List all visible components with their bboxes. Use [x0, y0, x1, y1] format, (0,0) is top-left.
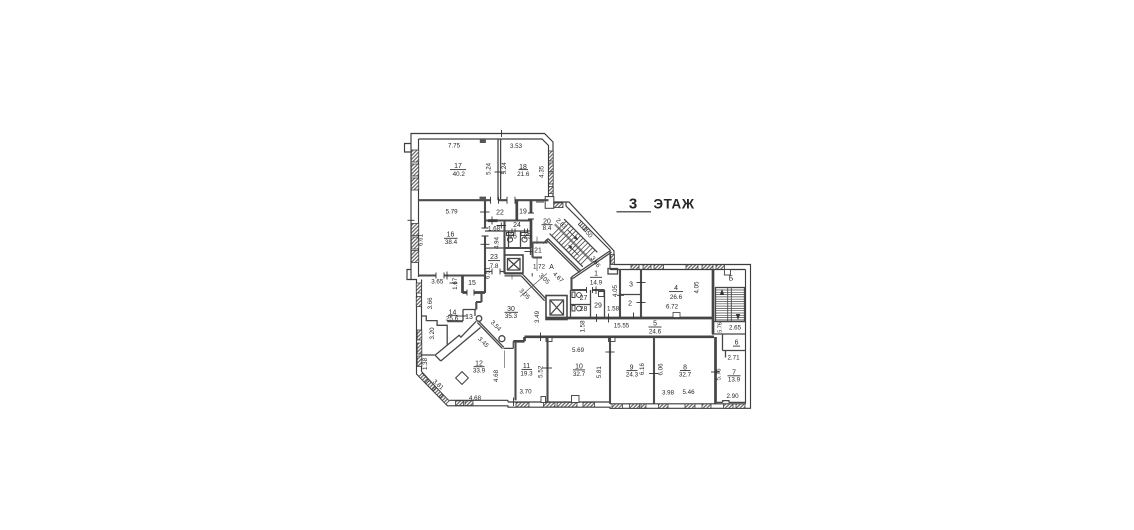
svg-text:2.71: 2.71: [727, 355, 740, 362]
svg-text:29: 29: [594, 303, 602, 310]
svg-text:21: 21: [534, 248, 542, 255]
svg-text:5.69: 5.69: [572, 347, 585, 354]
svg-text:6.51: 6.51: [485, 266, 492, 279]
svg-text:19.3: 19.3: [520, 371, 533, 378]
svg-text:1: 1: [594, 271, 598, 278]
svg-text:15.55: 15.55: [614, 323, 630, 330]
svg-text:25.6: 25.6: [446, 315, 459, 322]
svg-text:5.76: 5.76: [716, 368, 723, 381]
svg-text:4.35: 4.35: [539, 165, 546, 178]
svg-text:3.66: 3.66: [427, 297, 434, 310]
svg-text:5.24: 5.24: [501, 162, 508, 175]
svg-text:38.4: 38.4: [445, 239, 458, 246]
svg-text:3.65: 3.65: [431, 279, 444, 286]
svg-text:1.58: 1.58: [580, 320, 587, 333]
svg-text:4.68: 4.68: [493, 369, 500, 382]
svg-text:25: 25: [523, 234, 531, 241]
svg-text:26.6: 26.6: [670, 294, 683, 301]
svg-text:22: 22: [496, 210, 504, 217]
svg-text:6.72: 6.72: [666, 304, 679, 311]
svg-text:1.72: 1.72: [533, 264, 546, 271]
svg-text:4.68: 4.68: [469, 395, 482, 402]
svg-text:6.61: 6.61: [418, 233, 425, 246]
svg-text:3.98: 3.98: [662, 390, 675, 397]
svg-text:8.4: 8.4: [543, 225, 552, 232]
svg-text:4: 4: [674, 285, 678, 292]
svg-text:1.38: 1.38: [422, 357, 429, 370]
svg-text:2: 2: [628, 301, 632, 308]
svg-text:2.90: 2.90: [726, 393, 739, 400]
svg-text:27: 27: [580, 295, 588, 302]
svg-text:5.52: 5.52: [538, 365, 545, 378]
svg-text:10: 10: [575, 363, 583, 370]
svg-text:3.70: 3.70: [519, 389, 532, 396]
svg-text:19: 19: [519, 209, 527, 216]
svg-text:1.67: 1.67: [452, 277, 459, 290]
svg-text:5.46: 5.46: [682, 389, 695, 396]
svg-text:5.24: 5.24: [486, 162, 493, 175]
svg-text:23: 23: [490, 254, 498, 261]
svg-text:6: 6: [735, 340, 739, 347]
svg-text:4.05: 4.05: [694, 281, 701, 294]
svg-text:13: 13: [465, 314, 473, 321]
svg-text:7.75: 7.75: [448, 143, 461, 150]
svg-text:3.45: 3.45: [476, 336, 490, 350]
svg-text:35.3: 35.3: [505, 313, 518, 320]
svg-text:1.58: 1.58: [607, 305, 620, 312]
svg-text:24.3: 24.3: [626, 371, 639, 378]
svg-text:5.81: 5.81: [596, 366, 603, 379]
svg-text:3.05: 3.05: [518, 288, 532, 302]
svg-text:40.2: 40.2: [453, 171, 466, 178]
svg-text:5: 5: [653, 321, 657, 328]
svg-text:3: 3: [629, 282, 633, 289]
svg-text:3.20: 3.20: [429, 327, 436, 340]
svg-text:3.54: 3.54: [489, 319, 503, 333]
svg-text:30: 30: [507, 306, 515, 313]
svg-text:15: 15: [468, 280, 476, 287]
svg-text:1.68: 1.68: [488, 226, 501, 233]
svg-text:7: 7: [732, 369, 736, 376]
svg-text:6.06: 6.06: [658, 363, 665, 376]
svg-text:4.94: 4.94: [494, 236, 501, 249]
svg-text:13.9: 13.9: [728, 376, 741, 383]
svg-text:5.76: 5.76: [718, 322, 724, 333]
svg-text:4.05: 4.05: [612, 284, 619, 297]
svg-text:2.65: 2.65: [729, 325, 742, 332]
svg-text:А: А: [549, 264, 554, 271]
svg-text:17: 17: [454, 163, 462, 170]
svg-text:24: 24: [513, 222, 521, 229]
svg-text:16: 16: [447, 232, 455, 239]
svg-text:6.16: 6.16: [639, 363, 646, 376]
svg-text:3.05: 3.05: [537, 272, 551, 286]
svg-text:33.9: 33.9: [473, 367, 486, 374]
svg-text:Б: Б: [729, 276, 734, 283]
svg-text:4.67: 4.67: [551, 271, 565, 285]
svg-text:32.7: 32.7: [679, 371, 692, 378]
svg-text:ЭТАЖ: ЭТАЖ: [654, 197, 695, 212]
svg-text:2.83: 2.83: [554, 217, 568, 231]
svg-text:14.9: 14.9: [590, 280, 603, 287]
svg-text:24.6: 24.6: [649, 329, 662, 336]
svg-text:28: 28: [580, 306, 588, 313]
svg-text:32.7: 32.7: [573, 371, 586, 378]
svg-text:21.6: 21.6: [517, 171, 530, 178]
svg-text:3.49: 3.49: [534, 310, 541, 323]
svg-text:26: 26: [509, 234, 517, 241]
svg-text:3.53: 3.53: [510, 143, 523, 150]
svg-text:3: 3: [629, 196, 637, 213]
svg-text:5.79: 5.79: [446, 208, 459, 215]
